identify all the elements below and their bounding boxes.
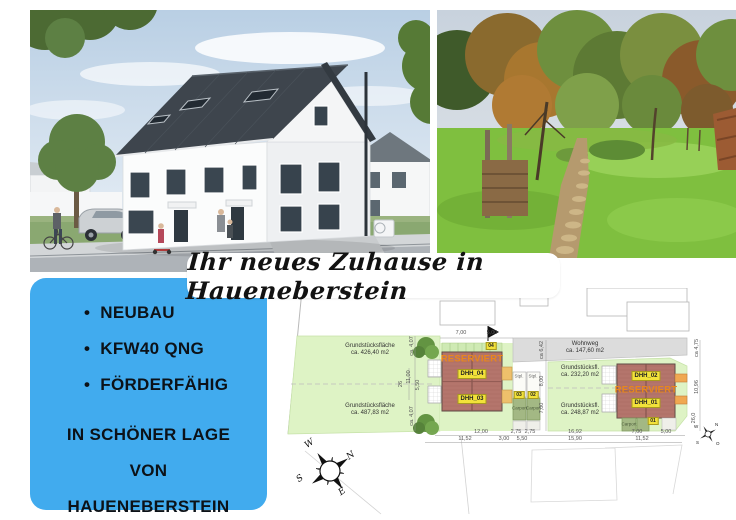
- wohnweg-label: Wohnwegca. 147,60 m2: [566, 341, 604, 355]
- photo-house-render: [30, 10, 430, 272]
- plot-label: Grundstücksfl.ca. 232,20 m2: [561, 365, 599, 379]
- dim-label: 11,52: [635, 436, 648, 442]
- photo-garden: [437, 10, 736, 258]
- stall-label: Stpl.: [528, 374, 537, 379]
- feature-item: NEUBAU: [84, 303, 267, 323]
- plot-label: Grundstücksflächeca. 426,40 m2: [345, 343, 395, 357]
- stall-label: Stpl.: [514, 374, 523, 379]
- dim-label: 10,96: [694, 380, 700, 394]
- plot-label: Grundstücksflächeca. 487,83 m2: [345, 403, 395, 417]
- compass-letter: O: [716, 441, 720, 446]
- stall-chip: 03: [514, 391, 525, 399]
- site-plan: Grundstücksflächeca. 426,40 m2 Grundstüc…: [285, 288, 736, 520]
- stall-chip: 04: [486, 342, 497, 350]
- dim-label: 5,50: [517, 436, 528, 442]
- features-box: NEUBAU KFW40 QNG FÖRDERFÄHIG IN SCHÖNER …: [30, 278, 267, 510]
- dim-label: 5,00: [487, 330, 498, 336]
- dim-label: ca 6,42: [539, 341, 545, 359]
- carport-label: Carport: [512, 406, 527, 411]
- headline-banner: Ihr neues Zuhause in Haueneberstein: [187, 253, 560, 298]
- reserved-label: RESERVIERT: [441, 354, 504, 365]
- dim-label: 7,00: [539, 403, 545, 414]
- dim-label: ca. 4,07: [409, 406, 415, 426]
- dim-label: 16,92: [568, 429, 582, 435]
- dim-label: 8,00: [539, 376, 545, 387]
- dim-label: 5,50: [415, 380, 421, 391]
- dim-label: 3,00: [499, 436, 510, 442]
- dim-label: ca 4,75: [694, 339, 700, 357]
- dim-label: 5,00: [661, 429, 672, 435]
- dim-label: 2,75: [511, 429, 522, 435]
- garden-photo-graphic: [437, 10, 736, 258]
- dim-label: 11,00: [406, 370, 412, 383]
- reserved-label: RESERVIERT: [615, 385, 678, 396]
- house-chip: DHH_03: [457, 394, 486, 404]
- feature-item: FÖRDERFÄHIG: [84, 375, 267, 395]
- carport-label: Carport: [621, 422, 636, 427]
- compass-letter: W: [694, 424, 698, 429]
- flyer-page: Ihr neues Zuhause in Haueneberstein NEUB…: [0, 0, 736, 520]
- house-chip: DHH_02: [631, 371, 660, 381]
- house-chip: DHH_01: [631, 398, 660, 408]
- dim-label: 7,00: [456, 330, 467, 336]
- dim-label: 26,0: [691, 413, 697, 424]
- dim-label: 7,00: [632, 429, 643, 435]
- dim-label: 15,90: [568, 436, 582, 442]
- house-render-graphic: [30, 10, 430, 272]
- dim-label: 11,52: [458, 436, 471, 442]
- plot-label: Grundstücksfl.ca. 248,87 m2: [561, 403, 599, 417]
- dim-label: 2,75: [525, 429, 536, 435]
- dim-label: ca. 4,07: [409, 336, 415, 356]
- headline-text: Ihr neues Zuhause in Haueneberstein: [185, 247, 562, 305]
- compass-letter: N: [715, 422, 718, 427]
- feature-item: KFW40 QNG: [84, 339, 267, 359]
- feature-list: NEUBAU KFW40 QNG FÖRDERFÄHIG: [30, 303, 267, 395]
- stall-chip: 01: [648, 417, 659, 425]
- stall-chip: 02: [528, 391, 539, 399]
- house-chip: DHH_04: [457, 369, 486, 379]
- compass-letter: S: [696, 440, 699, 445]
- dim-label: 12,00: [474, 429, 488, 435]
- dim-label: 26: [398, 381, 404, 387]
- location-text: IN SCHÖNER LAGE VON HAUENEBERSTEIN: [30, 417, 267, 520]
